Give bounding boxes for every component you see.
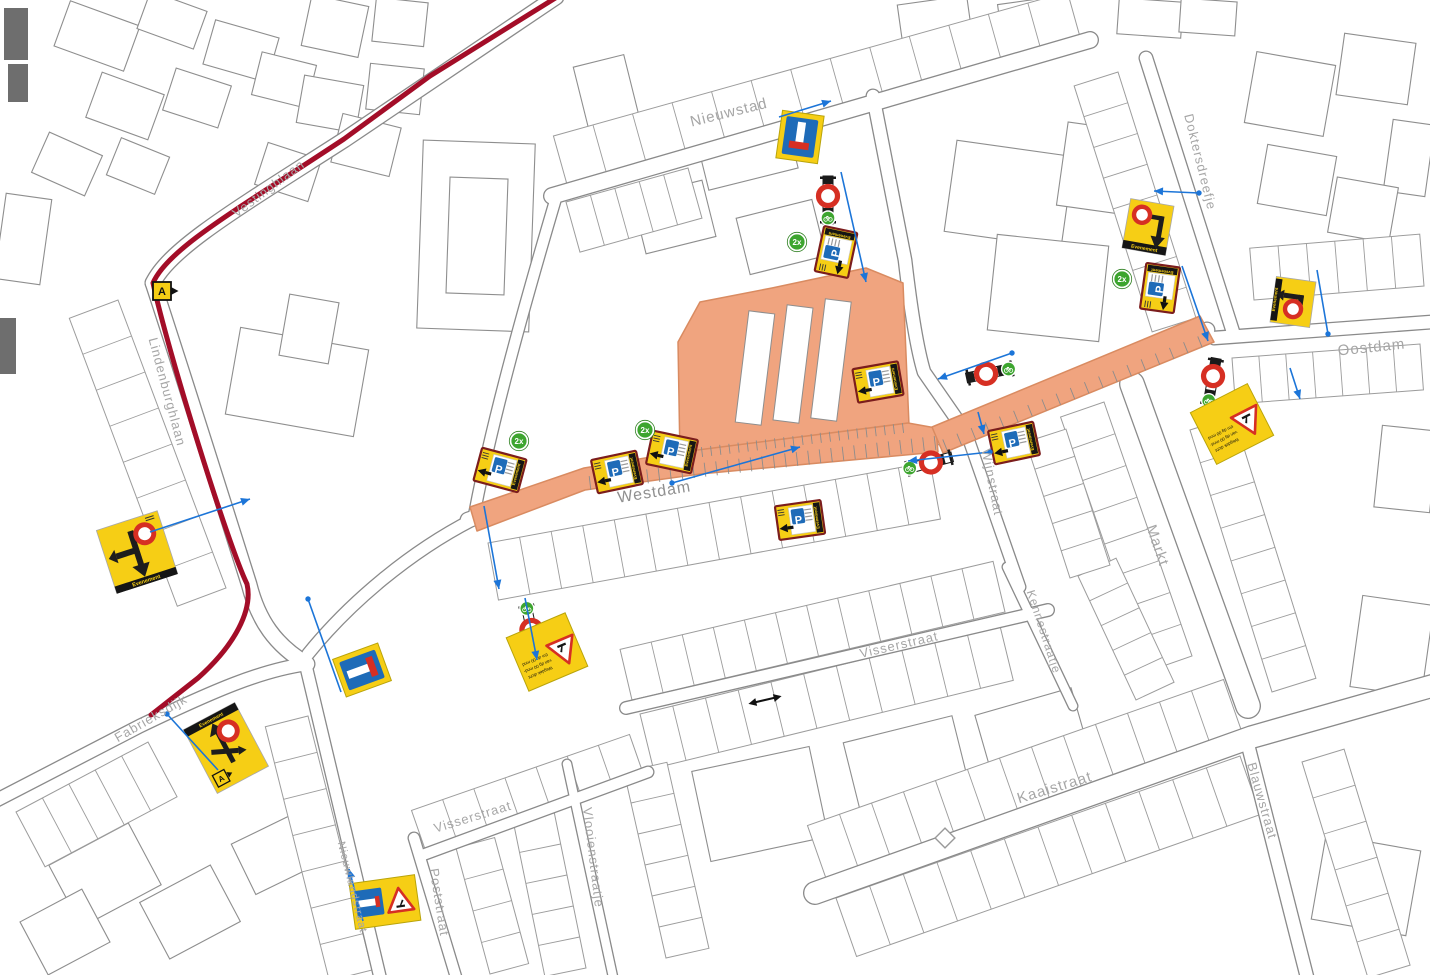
building-outline [301, 0, 369, 57]
building-outline [54, 1, 140, 71]
building-outline [1257, 144, 1336, 215]
bicycles-allowed-icon [903, 461, 917, 475]
event-detour-sign: EvenementA [183, 703, 268, 794]
event-detour-sign: Evenement [1122, 199, 1174, 256]
street-label: Kennestraatje [1024, 588, 1064, 675]
road-closed-barrier [819, 176, 838, 225]
building-outline [1383, 119, 1430, 196]
building-outline [1374, 425, 1430, 512]
building-outline [987, 234, 1108, 341]
building-outline [692, 747, 829, 862]
building-outline [944, 140, 1074, 248]
building-outline [163, 68, 232, 128]
road-closed-dates-sign: Wegdek dichtvan dg 00 mnd-t/m dg 00 mnd [506, 613, 588, 691]
bicycles-allowed-icon [821, 211, 835, 225]
building-filled [8, 64, 28, 102]
building-outline [372, 0, 428, 47]
svg-text:2x: 2x [641, 426, 650, 435]
road-closed-barrier [965, 358, 1019, 387]
sign-count-badge: 2x [787, 232, 806, 251]
building-outline [137, 0, 207, 49]
sign-count-badge: 2x [1112, 269, 1131, 288]
svg-text:A: A [158, 286, 166, 298]
building-outline [1117, 0, 1183, 38]
building-outline [0, 193, 52, 285]
traffic-plan-map: EvenementPEvenementEvenementPEvenementWe… [0, 0, 1430, 975]
event-parking-sign: EvenementP [852, 361, 903, 402]
building-outline [446, 177, 508, 295]
building-filled [0, 318, 16, 374]
building-outline [1336, 33, 1416, 104]
building-outline [1179, 0, 1237, 36]
event-detour-sign: Evenement [1269, 276, 1316, 327]
sign-count-badge: 2x [509, 431, 528, 450]
svg-text:2x: 2x [515, 437, 524, 446]
building-outline [736, 199, 826, 274]
building-outline [86, 72, 164, 140]
building-outline [1244, 52, 1335, 137]
street-label: Fabrieksdijk [112, 691, 190, 745]
building-filled [4, 8, 28, 60]
svg-text:2x: 2x [793, 238, 802, 247]
event-parking-sign: EvenementP [775, 500, 825, 540]
dead-end-road-sign [333, 643, 392, 697]
building-outline [32, 132, 103, 196]
dead-end-road-sign [776, 110, 824, 163]
sign-count-badge: 2x [635, 420, 654, 439]
building-outline [106, 138, 169, 195]
building-outline [279, 294, 339, 364]
map-canvas: EvenementPEvenementEvenementPEvenementWe… [0, 0, 1430, 975]
detour-route-a-marker: A [153, 282, 179, 300]
event-parking-sign: EvenementP [815, 226, 858, 278]
building-outline [1328, 177, 1399, 243]
svg-text:2x: 2x [1118, 275, 1127, 284]
bicycles-allowed-icon [1002, 362, 1016, 376]
event-parking-sign: EvenementP [1140, 263, 1180, 313]
